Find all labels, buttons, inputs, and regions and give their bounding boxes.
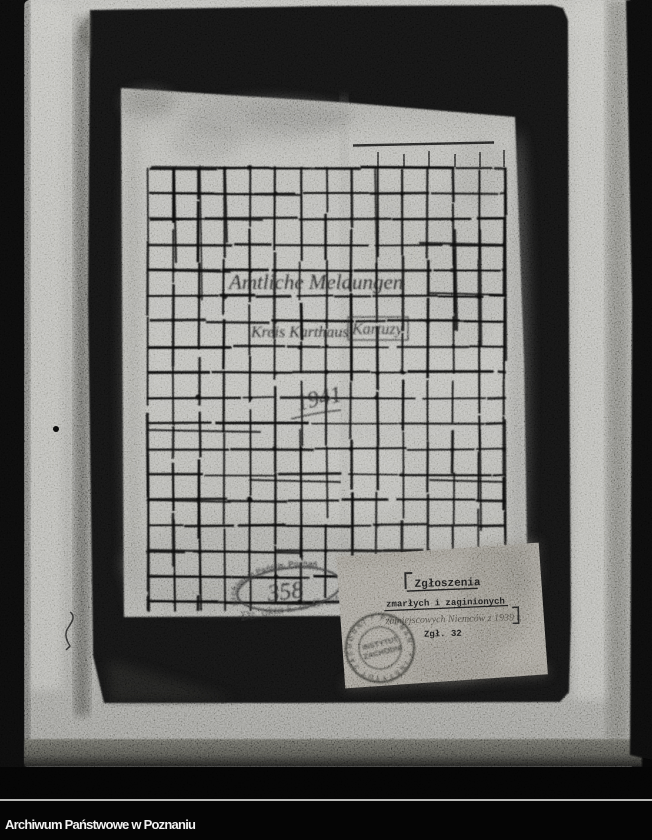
svg-text:Archiwum Państwowe w Poznaniu: Archiwum Państwowe w Poznaniu [5,817,196,832]
